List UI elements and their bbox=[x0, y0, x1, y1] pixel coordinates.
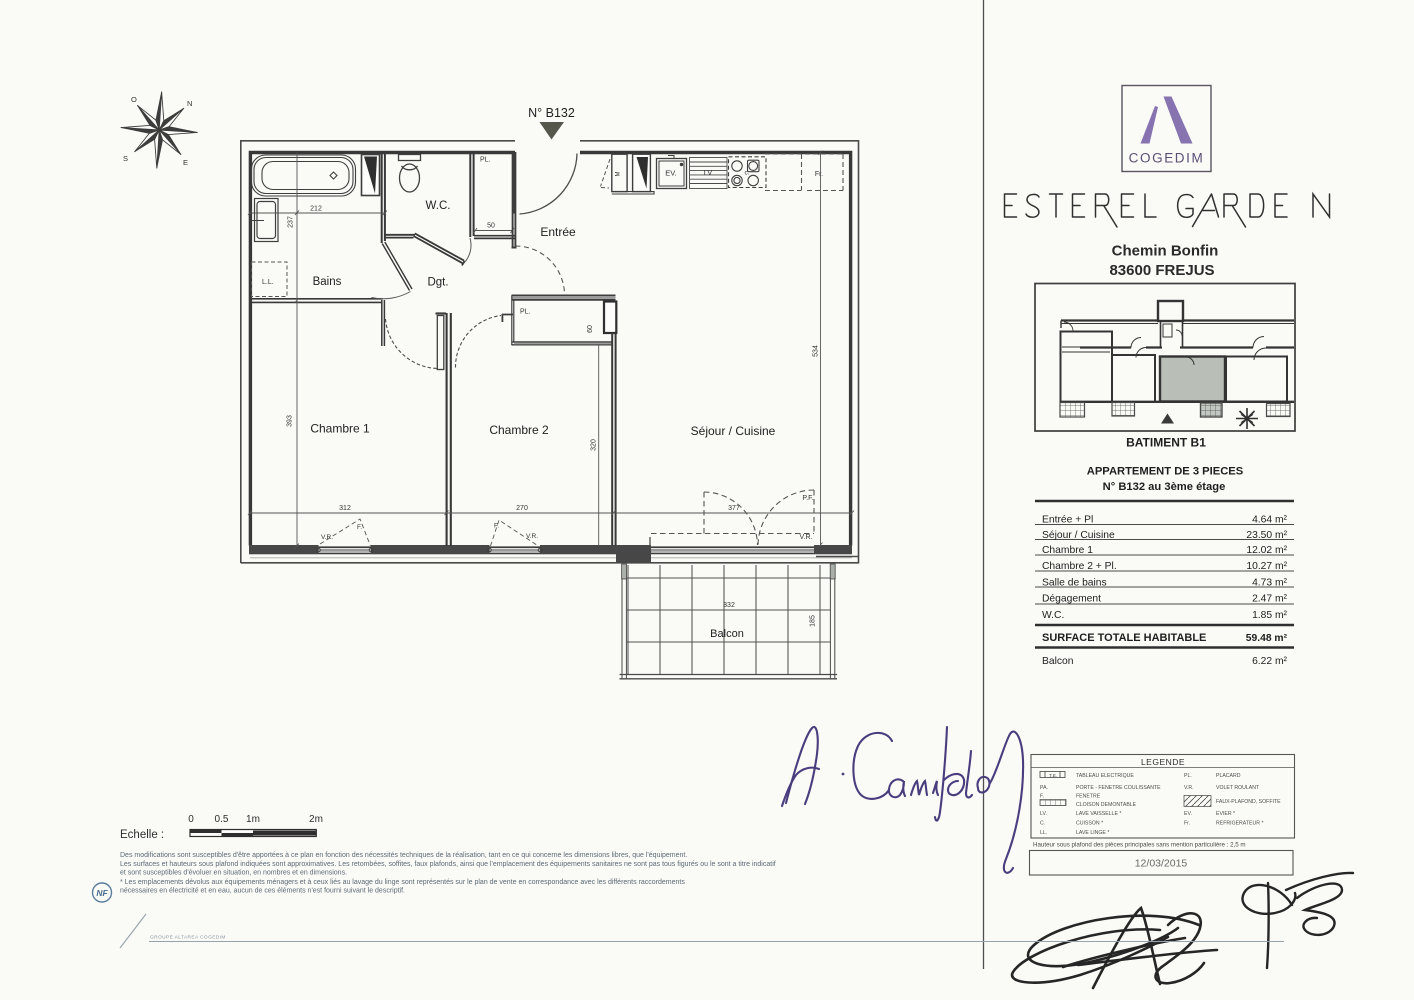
svg-text:NF: NF bbox=[96, 888, 108, 898]
svg-text:4.73 m²: 4.73 m² bbox=[1252, 578, 1287, 589]
svg-text:M: M bbox=[616, 172, 622, 177]
svg-text:0: 0 bbox=[188, 814, 194, 825]
svg-text:V.R.: V.R. bbox=[526, 533, 538, 540]
svg-text:E: E bbox=[183, 158, 188, 167]
svg-text:Séjour / Cuisine: Séjour / Cuisine bbox=[691, 424, 776, 438]
svg-text:N: N bbox=[187, 99, 192, 108]
svg-text:Echelle :: Echelle : bbox=[120, 829, 164, 841]
svg-text:FENETRE: FENETRE bbox=[1076, 794, 1101, 800]
svg-text:12.02 m²: 12.02 m² bbox=[1246, 545, 1287, 556]
svg-text:Fr.: Fr. bbox=[815, 171, 823, 178]
svg-text:CLOISON DEMONTABLE: CLOISON DEMONTABLE bbox=[1076, 802, 1137, 808]
svg-text:GROUPE ALTAREA COGEDIM: GROUPE ALTAREA COGEDIM bbox=[150, 935, 226, 941]
svg-text:W.C.: W.C. bbox=[1042, 610, 1064, 621]
svg-text:VOLET ROULANT: VOLET ROULANT bbox=[1216, 785, 1260, 791]
svg-text:PA.: PA. bbox=[1040, 785, 1048, 791]
svg-text:SURFACE TOTALE HABITABLE: SURFACE TOTALE HABITABLE bbox=[1042, 632, 1206, 644]
svg-text:APPARTEMENT DE 3 PIECES: APPARTEMENT DE 3 PIECES bbox=[1087, 466, 1244, 478]
svg-text:W.C.: W.C. bbox=[426, 200, 451, 212]
svg-text:TABLEAU ELECTRIQUE: TABLEAU ELECTRIQUE bbox=[1076, 773, 1134, 779]
svg-text:REFRIGERATEUR *: REFRIGERATEUR * bbox=[1216, 821, 1263, 827]
svg-text:S: S bbox=[123, 154, 128, 163]
svg-text:F.: F. bbox=[1040, 794, 1044, 800]
svg-text:Chambre 1: Chambre 1 bbox=[1042, 545, 1093, 556]
svg-text:T.E.: T.E. bbox=[1049, 773, 1057, 779]
svg-text:LV.: LV. bbox=[1040, 811, 1047, 817]
svg-text:534: 534 bbox=[813, 345, 820, 357]
svg-text:COGEDIM: COGEDIM bbox=[1129, 151, 1205, 166]
svg-text:* Les emplacements dévolus aux: * Les emplacements dévolus aux équipemen… bbox=[120, 879, 685, 886]
svg-text:N° B132 au 3ème étage: N° B132 au 3ème étage bbox=[1103, 481, 1226, 493]
svg-text:V.R.: V.R. bbox=[1184, 785, 1194, 791]
svg-text:0.5: 0.5 bbox=[215, 814, 229, 825]
svg-text:377: 377 bbox=[728, 505, 740, 512]
svg-text:CUISSON *: CUISSON * bbox=[1076, 821, 1103, 827]
svg-text:Salle de bains: Salle de bains bbox=[1042, 578, 1107, 589]
svg-text:1.85 m²: 1.85 m² bbox=[1252, 610, 1287, 621]
svg-text:F.: F. bbox=[357, 524, 362, 531]
svg-text:LAVE VAISSELLE *: LAVE VAISSELLE * bbox=[1076, 811, 1121, 817]
svg-text:50: 50 bbox=[487, 223, 495, 230]
svg-text:1m: 1m bbox=[246, 814, 260, 825]
svg-text:59.48 m²: 59.48 m² bbox=[1246, 633, 1288, 644]
svg-text:EVIER *: EVIER * bbox=[1216, 811, 1235, 817]
svg-text:C.: C. bbox=[1040, 821, 1045, 827]
svg-text:Balcon: Balcon bbox=[710, 628, 744, 640]
svg-text:PL.: PL. bbox=[480, 157, 491, 164]
svg-text:EV.: EV. bbox=[1184, 811, 1192, 817]
svg-text:Dégagement: Dégagement bbox=[1042, 594, 1101, 605]
svg-text:LAVE LINGE *: LAVE LINGE * bbox=[1076, 830, 1109, 836]
svg-text:Dgt.: Dgt. bbox=[427, 277, 448, 289]
svg-text:LV: LV bbox=[704, 168, 713, 177]
svg-text:332: 332 bbox=[723, 602, 735, 609]
svg-text:12/03/2015: 12/03/2015 bbox=[1135, 858, 1188, 870]
svg-text:N° B132: N° B132 bbox=[528, 106, 575, 120]
svg-text:4.64 m²: 4.64 m² bbox=[1252, 515, 1287, 526]
svg-text:10.27 m²: 10.27 m² bbox=[1246, 561, 1287, 572]
svg-text:Balcon: Balcon bbox=[1042, 656, 1074, 667]
svg-text:Entrée + Pl: Entrée + Pl bbox=[1042, 515, 1093, 526]
svg-text:c.: c. bbox=[745, 170, 750, 177]
svg-text:83600 FREJUS: 83600 FREJUS bbox=[1109, 262, 1214, 279]
svg-text:6.22 m²: 6.22 m² bbox=[1252, 656, 1287, 667]
svg-text:LL.: LL. bbox=[1040, 830, 1047, 836]
svg-text:320: 320 bbox=[591, 439, 598, 451]
svg-text:393: 393 bbox=[287, 415, 294, 427]
svg-text:Séjour / Cuisine: Séjour / Cuisine bbox=[1042, 530, 1115, 541]
svg-text:185: 185 bbox=[810, 615, 817, 627]
svg-text:PLACARD: PLACARD bbox=[1216, 773, 1241, 779]
svg-text:V.R.: V.R. bbox=[321, 534, 333, 541]
svg-text:Chemin Bonfin: Chemin Bonfin bbox=[1112, 243, 1219, 260]
svg-text:Chambre 1: Chambre 1 bbox=[310, 422, 370, 436]
svg-text:O: O bbox=[131, 95, 137, 104]
svg-text:PORTE - FENETRE COULISSANTE: PORTE - FENETRE COULISSANTE bbox=[1076, 785, 1161, 791]
svg-text:EV.: EV. bbox=[665, 169, 676, 178]
svg-text:312: 312 bbox=[339, 505, 351, 512]
svg-text:Bains: Bains bbox=[313, 276, 342, 288]
svg-text:P.F.: P.F. bbox=[802, 495, 813, 502]
svg-text:237: 237 bbox=[288, 216, 295, 228]
svg-text:BATIMENT B1: BATIMENT B1 bbox=[1126, 436, 1206, 450]
svg-text:Les surfaces et hauteurs sous: Les surfaces et hauteurs sous plafond in… bbox=[120, 861, 776, 868]
svg-text:23.50 m²: 23.50 m² bbox=[1246, 530, 1287, 541]
svg-text:V.R.: V.R. bbox=[800, 534, 813, 541]
svg-text:212: 212 bbox=[310, 206, 322, 213]
svg-text:Fr.: Fr. bbox=[1184, 821, 1190, 827]
svg-text:PL.: PL. bbox=[1184, 773, 1192, 779]
svg-text:nécessaires en électricité et: nécessaires en électricité et en eau, au… bbox=[120, 888, 405, 895]
svg-text:270: 270 bbox=[516, 505, 528, 512]
svg-text:et sont susceptibles d'évoluer: et sont susceptibles d'évoluer en situat… bbox=[120, 870, 347, 877]
svg-text:F.: F. bbox=[494, 523, 499, 530]
svg-text:60: 60 bbox=[587, 325, 594, 333]
svg-text:Chambre 2: Chambre 2 bbox=[489, 423, 549, 437]
svg-text:2m: 2m bbox=[309, 814, 323, 825]
svg-text:Des modifications sont suscept: Des modifications sont susceptibles d'êt… bbox=[120, 852, 687, 859]
svg-text:LEGENDE: LEGENDE bbox=[1141, 757, 1185, 767]
svg-text:FAUX-PLAFOND, SOFFITE: FAUX-PLAFOND, SOFFITE bbox=[1216, 799, 1281, 805]
svg-text:Hauteur sous plafond des pièce: Hauteur sous plafond des pièces principa… bbox=[1033, 842, 1246, 849]
svg-text:PL.: PL. bbox=[520, 309, 531, 316]
svg-text:Chambre 2 + Pl.: Chambre 2 + Pl. bbox=[1042, 561, 1117, 572]
svg-text:L.L.: L.L. bbox=[262, 279, 274, 286]
svg-text:2.47 m²: 2.47 m² bbox=[1252, 594, 1287, 605]
svg-text:Entrée: Entrée bbox=[540, 225, 576, 239]
